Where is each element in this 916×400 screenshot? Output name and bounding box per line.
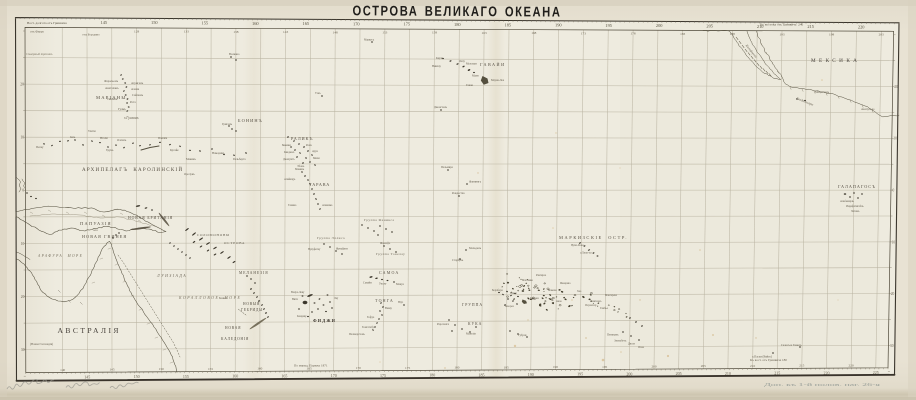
svg-text:АВСТРАЛІЯ: АВСТРАЛІЯ (58, 326, 121, 335)
svg-text:з.Гуаханъ: з.Гуаханъ (123, 116, 139, 120)
svg-text:210: 210 (750, 364, 755, 368)
svg-text:Ромз.: Ромз. (306, 144, 312, 147)
svg-text:РАЛИКЪ: РАЛИКЪ (291, 136, 313, 141)
svg-text:180: 180 (454, 366, 459, 370)
svg-text:ОСТРОВА ВЕЛИКАГО ОКЕАНА: ОСТРОВА ВЕЛИКАГО ОКЕАНА (352, 2, 561, 19)
svg-text:175: 175 (404, 22, 411, 27)
svg-text:185: 185 (504, 365, 509, 369)
svg-text:20: 20 (894, 85, 898, 89)
svg-text:НОВАЯ: НОВАЯ (225, 326, 241, 330)
svg-text:Мацатланъ: Мацатланъ (815, 90, 830, 94)
svg-text:168: 168 (531, 31, 536, 35)
svg-text:165: 165 (281, 373, 287, 378)
svg-text:145: 145 (84, 375, 90, 380)
svg-text:Тонгатабу: Тонгатабу (362, 326, 375, 329)
svg-text:20: 20 (21, 295, 25, 299)
svg-text:200: 200 (656, 23, 663, 28)
svg-text:30: 30 (890, 344, 894, 348)
svg-text:0: 0 (893, 189, 895, 193)
svg-text:АРАФУРА МОРЕ: АРАФУРА МОРЕ (37, 254, 83, 258)
svg-text:Альбемарль: Альбемарль (840, 200, 855, 203)
svg-text:Бикини: Бикини (282, 144, 291, 147)
svg-text:145: 145 (101, 20, 108, 25)
svg-text:200: 200 (626, 371, 632, 376)
svg-text:МЕЛАНЕЗІЯ: МЕЛАНЕЗІЯ (239, 271, 269, 275)
svg-text:173: 173 (581, 31, 586, 35)
svg-text:Савайи: Савайи (363, 282, 372, 285)
svg-text:Уполу: Уполу (379, 283, 387, 286)
svg-text:отъ Ферро: отъ Ферро (30, 29, 45, 33)
svg-text:Доп. къ 1-й полов. паг. 26-я: Доп. къ 1-й полов. паг. 26-я (764, 383, 881, 387)
svg-text:Кауаи: Кауаи (436, 57, 444, 60)
svg-text:185: 185 (505, 22, 512, 27)
svg-text:Тикеи: Тикеи (510, 292, 517, 295)
svg-text:150: 150 (159, 367, 164, 371)
svg-text:ЛУИЗІАДА: ЛУИЗІАДА (156, 274, 187, 278)
svg-text:КУКА: КУКА (468, 322, 482, 326)
svg-text:183: 183 (680, 32, 685, 36)
svg-text:Улити: Улити (88, 129, 96, 133)
svg-text:Кваджал.: Кваджал. (284, 151, 295, 154)
svg-text:205: 205 (676, 371, 682, 376)
svg-text:150: 150 (151, 20, 158, 25)
svg-text:190: 190 (553, 365, 558, 369)
svg-text:155: 155 (183, 374, 189, 379)
svg-text:20: 20 (891, 292, 895, 296)
svg-text:Чатамъ: Чатамъ (851, 210, 860, 213)
svg-text:Салесъ и Гомесъ: Салесъ и Гомесъ (781, 343, 802, 347)
svg-text:МЕКСИКА: МЕКСИКА (811, 58, 860, 64)
svg-text:Маркусъ: Маркусъ (364, 39, 375, 42)
svg-text:Къ востоку отъ Гринвича 240: Къ востоку отъ Гринвича 240 (760, 22, 804, 26)
svg-text:ГЕБРИДЫ: ГЕБРИДЫ (241, 308, 263, 312)
svg-text:Ніуэ: Ніуэ (398, 301, 404, 304)
svg-text:ОСТРОВА: ОСТРОВА (224, 241, 245, 245)
svg-text:КАЛЕДОНІЯ: КАЛЕДОНІЯ (221, 337, 249, 341)
svg-text:138: 138 (233, 30, 238, 34)
svg-text:Старбукъ: Старбукъ (452, 259, 464, 262)
svg-text:Наморикъ: Наморикъ (212, 151, 225, 155)
svg-text:145: 145 (109, 368, 114, 372)
svg-text:225: 225 (873, 370, 879, 375)
svg-text:или: или (93, 228, 98, 232)
svg-text:Факарава: Факарава (560, 282, 571, 285)
svg-text:Вити: Вити (292, 298, 298, 301)
svg-text:Нукуфетау: Нукуфетау (308, 248, 321, 251)
svg-text:Гамбье: Гамбье (600, 307, 609, 310)
svg-text:178: 178 (630, 32, 635, 36)
svg-text:Оролукъ: Оролукъ (184, 172, 195, 176)
svg-text:215: 215 (799, 364, 804, 368)
svg-text:САМОА: САМОА (379, 270, 400, 275)
svg-text:Уэкъ: Уэкъ (315, 92, 321, 95)
svg-text:Мили: Мили (313, 157, 320, 160)
svg-text:Гаваи: Гаваи (466, 84, 473, 87)
svg-text:Кусайе: Кусайе (170, 148, 179, 152)
svg-text:133: 133 (184, 30, 189, 34)
svg-text:Группа Токелау: Группа Токелау (376, 252, 405, 256)
svg-text:Сайпанъ: Сайпанъ (132, 93, 143, 97)
svg-text:Макинъ: Макинъ (295, 168, 305, 171)
svg-text:ТОНГА: ТОНГА (375, 298, 394, 303)
svg-text:Ниихау: Ниихау (432, 65, 441, 68)
svg-text:185: 185 (479, 372, 485, 377)
svg-text:Макинъ: Макинъ (186, 157, 196, 161)
svg-text:215: 215 (807, 24, 814, 29)
svg-text:0: 0 (22, 189, 24, 193)
svg-text:о.Пасхи (Вайгу): о.Пасхи (Вайгу) (752, 355, 772, 359)
svg-text:Борабора: Борабора (492, 289, 503, 292)
svg-text:160: 160 (252, 21, 259, 26)
svg-text:Элизабетъ: Элизабетъ (614, 340, 627, 343)
svg-text:Гуамъ: Гуамъ (118, 107, 126, 111)
svg-text:195: 195 (605, 23, 612, 28)
svg-text:Тамана: Тамана (288, 204, 297, 207)
svg-text:СОЛОМОНОВЫ: СОЛОМОНОВЫ (197, 233, 230, 237)
svg-text:Мангарева: Мангарева (605, 294, 618, 297)
svg-text:Кандаву: Кандаву (297, 315, 307, 318)
svg-text:210: 210 (725, 371, 731, 376)
svg-text:220: 220 (849, 363, 854, 367)
svg-text:Григанъ: Григанъ (222, 122, 232, 126)
svg-text:163: 163 (482, 31, 487, 35)
svg-text:МАРІАНЫ: МАРІАНЫ (96, 95, 127, 100)
svg-text:Мауи: Мауи (472, 75, 479, 78)
svg-text:АРХИПЕЛАГЪ КАРОЛИНСКІЙ: АРХИПЕЛАГЪ КАРОЛИНСКІЙ (82, 167, 183, 173)
svg-text:10: 10 (21, 136, 25, 140)
svg-text:Оаху: Оаху (459, 60, 466, 63)
svg-text:Лау: Лау (334, 297, 339, 300)
svg-text:Молокаи: Молокаи (466, 63, 477, 66)
svg-text:Питкэрнъ: Питкэрнъ (607, 334, 619, 337)
svg-text:о-ва Бородино: о-ва Бородино (82, 33, 100, 37)
svg-text:НОВЫЯ: НОВЫЯ (243, 302, 260, 306)
svg-text:Хао: Хао (577, 290, 582, 293)
svg-text:Группа Феникса: Группа Феникса (364, 218, 395, 222)
svg-text:195: 195 (602, 365, 607, 369)
svg-text:Нголи: Нголи (100, 136, 108, 140)
svg-text:175: 175 (405, 366, 410, 370)
svg-text:155: 155 (202, 21, 209, 26)
svg-text:Вавау: Вавау (385, 307, 392, 310)
svg-text:Моореа: Моореа (505, 305, 515, 308)
svg-text:Палмерстонъ: Палмерстонъ (349, 333, 365, 336)
svg-text:175: 175 (380, 373, 386, 378)
svg-text:Сѣверный тропикъ: Сѣверный тропикъ (26, 51, 53, 56)
svg-text:200: 200 (651, 365, 656, 369)
svg-text:205: 205 (706, 24, 713, 29)
svg-text:По мерид. Парижа 1871: По мерид. Парижа 1871 (294, 364, 328, 368)
svg-text:Гильберта: Гильберта (233, 157, 246, 161)
svg-text:143: 143 (283, 30, 288, 34)
svg-text:Джонстонъ: Джонстонъ (434, 106, 448, 109)
svg-text:220: 220 (824, 370, 830, 375)
svg-text:190: 190 (555, 23, 562, 28)
svg-text:Индефатигабль: Индефатигабль (846, 205, 864, 208)
svg-text:Паумоту: Паумоту (584, 303, 597, 307)
svg-text:Пелеу: Пелеу (36, 145, 44, 149)
svg-text:10: 10 (21, 242, 25, 246)
svg-text:Дюси: Дюси (628, 343, 635, 346)
svg-text:Матахива: Матахива (522, 279, 534, 282)
svg-text:ТАРАВА: ТАРАВА (309, 182, 330, 187)
svg-text:БОНИНЪ: БОНИНЪ (238, 118, 263, 123)
svg-text:150: 150 (134, 374, 140, 379)
svg-text:Рождества: Рождества (452, 192, 465, 195)
svg-text:Джалуитъ: Джалуитъ (283, 158, 295, 161)
svg-text:Аурх: Аурх (312, 150, 318, 153)
svg-text:Тофуа: Тофуа (367, 316, 375, 319)
svg-text:Апайangъ: Апайangъ (284, 178, 296, 181)
svg-text:180: 180 (454, 22, 461, 27)
svg-text:НОВАЯ БРИТАНІЯ: НОВАЯ БРИТАНІЯ (128, 216, 173, 220)
svg-text:198: 198 (829, 33, 834, 37)
svg-text:Мануа: Мануа (396, 283, 405, 286)
svg-text:160: 160 (257, 367, 262, 371)
svg-text:Нука-Хива: Нука-Хива (570, 244, 584, 247)
svg-text:195: 195 (577, 372, 583, 377)
svg-text:Вануа-Леву: Вануа-Леву (291, 291, 305, 294)
svg-text:Трукъ: Трукъ (106, 148, 114, 152)
svg-text:Рангироа: Рангироа (536, 274, 547, 277)
svg-text:Факаофо: Факаофо (380, 242, 391, 245)
svg-text:Вост. долгота отъ Гринвича: Вост. долгота отъ Гринвича (27, 21, 67, 25)
svg-text:Фаннингъ: Фаннингъ (469, 181, 482, 184)
svg-text:10: 10 (893, 137, 897, 141)
svg-text:203: 203 (879, 33, 884, 37)
svg-text:140: 140 (60, 368, 65, 372)
svg-text:148: 148 (333, 30, 338, 34)
svg-text:Акапулько: Акапулько (861, 107, 875, 111)
svg-text:Алама: Алама (131, 87, 140, 91)
svg-text:Мауна-Лоа: Мауна-Лоа (491, 79, 505, 82)
svg-text:220: 220 (858, 24, 865, 29)
svg-text:Пальмира: Пальмира (441, 166, 454, 169)
svg-text:Мальденъ: Мальденъ (469, 247, 482, 250)
svg-text:128: 128 (134, 29, 139, 33)
svg-text:215: 215 (774, 371, 780, 376)
svg-text:Понапе: Понапе (158, 136, 168, 140)
svg-text:153: 153 (382, 31, 387, 35)
svg-text:ФИДЖИ: ФИДЖИ (313, 318, 336, 323)
svg-text:НОВАЯ ГВИНЕЯ: НОВАЯ ГВИНЕЯ (82, 234, 127, 239)
svg-text:ГАВАЙИ: ГАВАЙИ (480, 62, 506, 67)
svg-text:190: 190 (528, 372, 534, 377)
svg-text:Фунафути: Фунафути (336, 248, 348, 251)
svg-text:Мангаія: Мангаія (466, 333, 476, 336)
svg-text:10: 10 (892, 240, 896, 244)
svg-text:158: 158 (432, 31, 437, 35)
svg-text:Фаральонъ: Фаральонъ (104, 79, 119, 83)
svg-text:Таханеа: Таханеа (530, 297, 540, 300)
svg-text:(Новая Голландія): (Новая Голландія) (30, 342, 53, 346)
svg-text:Анатаханъ: Анатаханъ (105, 86, 119, 90)
svg-text:Іапъ: Іапъ (70, 135, 76, 139)
svg-text:20: 20 (20, 83, 24, 87)
svg-text:Анаа: Анаа (556, 300, 562, 303)
svg-text:193: 193 (779, 32, 784, 36)
svg-text:Группа Эллиса: Группа Эллиса (317, 236, 345, 240)
svg-text:КОРАЛЛОВОЕ МОРЕ: КОРАЛЛОВОЕ МОРЕ (178, 296, 241, 300)
svg-text:МАРКИЗСКІЕ ОСТР.: МАРКИЗСКІЕ ОСТР. (559, 235, 628, 240)
svg-text:Апамама: Апамама (322, 204, 333, 207)
svg-text:165: 165 (303, 21, 310, 26)
svg-text:170: 170 (356, 366, 361, 370)
svg-text:Тубуаи: Тубуаи (518, 334, 527, 337)
svg-text:205: 205 (701, 364, 706, 368)
svg-text:Оллапъ: Оллапъ (117, 138, 127, 142)
svg-text:170: 170 (353, 21, 360, 26)
svg-text:170: 170 (331, 373, 337, 378)
svg-text:180: 180 (429, 373, 435, 378)
svg-text:ГАЛАПАГОСЪ: ГАЛАПАГОСЪ (838, 184, 876, 189)
svg-text:Оэно: Оэно (638, 346, 645, 349)
svg-text:Волкано: Волкано (229, 52, 240, 56)
svg-text:ПАПУАЗІЯ: ПАПУАЗІЯ (80, 221, 112, 226)
svg-text:Макемо: Макемо (548, 289, 557, 292)
svg-text:о.Хива-оа: о.Хива-оа (580, 252, 592, 255)
svg-text:160: 160 (232, 374, 238, 379)
svg-text:Рота: Рота (130, 100, 136, 104)
svg-text:155: 155 (208, 367, 213, 371)
svg-text:Раротонга: Раротонга (437, 323, 450, 326)
svg-text:ГРУППА: ГРУППА (462, 303, 483, 307)
svg-text:Агриганъ: Агриганъ (131, 81, 144, 85)
svg-text:30: 30 (21, 348, 25, 352)
